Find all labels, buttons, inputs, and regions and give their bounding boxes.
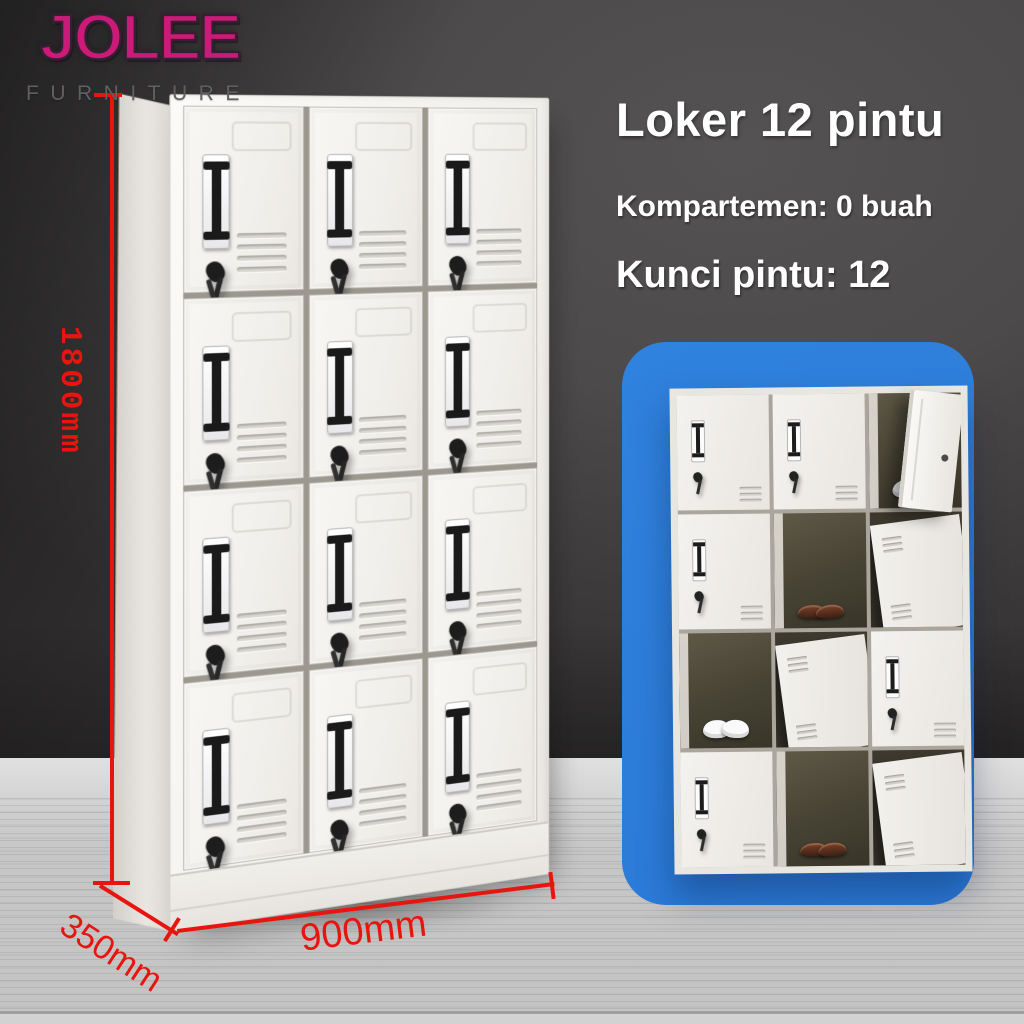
locker-door bbox=[428, 467, 537, 653]
inset-door-closed bbox=[677, 395, 770, 511]
vent-icon bbox=[934, 720, 956, 738]
dimension-height-line bbox=[110, 95, 114, 884]
inset-door-ajar bbox=[872, 750, 965, 866]
dimension-height-label: 1800mm bbox=[52, 326, 87, 456]
vent-icon bbox=[476, 762, 521, 811]
vent-icon bbox=[741, 603, 763, 621]
inset-compartment-open bbox=[774, 513, 867, 629]
emboss-stamp bbox=[355, 122, 412, 151]
product-title: Loker 12 pintu bbox=[616, 92, 1020, 147]
inset-door-ajar bbox=[775, 632, 868, 748]
inset-door-ajar bbox=[870, 512, 963, 628]
cabinet-side-panel bbox=[113, 94, 172, 941]
vent-icon bbox=[237, 415, 287, 463]
door-handle-icon bbox=[691, 421, 705, 463]
handle-grip bbox=[211, 170, 220, 232]
inset-door-closed bbox=[680, 752, 773, 868]
emboss-stamp bbox=[232, 687, 292, 723]
vent-icon bbox=[882, 536, 902, 542]
vent-icon bbox=[739, 484, 761, 502]
vent-icon bbox=[359, 224, 406, 269]
vent-icon bbox=[237, 604, 287, 654]
locker-door bbox=[428, 107, 537, 286]
door-handle-icon bbox=[885, 656, 899, 698]
door-handle-icon bbox=[202, 536, 229, 633]
vent-icon bbox=[359, 593, 406, 641]
emboss-stamp bbox=[472, 662, 526, 696]
locker-door bbox=[183, 106, 303, 293]
vent-icon bbox=[359, 408, 406, 455]
vent-icon bbox=[237, 226, 287, 272]
door-handle-icon bbox=[445, 154, 470, 245]
handle-grip bbox=[335, 170, 344, 230]
brand-logo: JOLEE FURNITURE bbox=[40, 0, 240, 74]
vent-icon bbox=[884, 774, 904, 780]
vent-icon bbox=[743, 841, 765, 859]
emboss-stamp bbox=[472, 482, 526, 514]
vent-icon bbox=[359, 777, 406, 827]
white-sneakers bbox=[707, 720, 745, 743]
inset-compartment-open bbox=[679, 633, 772, 749]
handle-grip bbox=[890, 664, 894, 690]
door-handle-icon bbox=[445, 518, 470, 610]
open-door-panel bbox=[870, 514, 963, 628]
locker-door bbox=[309, 658, 424, 853]
main-locker-cabinet bbox=[169, 94, 549, 932]
inset-door-closed bbox=[871, 631, 964, 747]
door-handle-icon bbox=[327, 341, 353, 435]
handle-grip bbox=[697, 547, 701, 573]
handle-grip bbox=[211, 744, 220, 807]
locker-door bbox=[183, 671, 303, 871]
door-handle-icon bbox=[202, 727, 229, 825]
door-handle-icon bbox=[327, 154, 353, 247]
emboss-stamp bbox=[232, 499, 292, 533]
vent-icon bbox=[237, 792, 287, 843]
keys-icon bbox=[695, 591, 709, 617]
emboss-stamp bbox=[355, 674, 412, 709]
cabinet-front-face bbox=[169, 94, 549, 932]
open-door-panel bbox=[775, 634, 868, 748]
emboss-stamp bbox=[472, 302, 526, 332]
inset-compartment-open bbox=[776, 751, 869, 867]
main-locker-grid bbox=[183, 106, 537, 871]
emboss-stamp bbox=[355, 306, 412, 337]
vent-icon bbox=[476, 222, 521, 266]
handle-grip bbox=[453, 716, 462, 776]
door-handle-icon bbox=[202, 346, 229, 442]
door-handle-icon bbox=[692, 539, 706, 581]
door-handle-icon bbox=[202, 155, 229, 250]
brown-loafers bbox=[805, 843, 841, 861]
product-banner: JOLEE FURNITURE Loker 12 pintu Kompartem… bbox=[0, 0, 1024, 1024]
inset-door-closed bbox=[678, 514, 771, 630]
emboss-stamp bbox=[355, 490, 412, 523]
handle-grip bbox=[453, 351, 462, 410]
locker-door bbox=[428, 288, 537, 470]
door-handle-icon bbox=[327, 527, 353, 622]
locker-door bbox=[183, 295, 303, 486]
locker-door bbox=[183, 483, 303, 678]
handle-grip bbox=[453, 533, 462, 593]
spec-compartments: Kompartemen: 0 buah bbox=[616, 190, 1020, 224]
handle-grip bbox=[700, 785, 704, 811]
headline-block: Loker 12 pintu Kompartemen: 0 buah Kunci… bbox=[616, 92, 1020, 297]
locker-door bbox=[309, 107, 424, 290]
door-lock-icon bbox=[941, 454, 949, 462]
emboss-stamp bbox=[232, 121, 292, 151]
spec-locks: Kunci pintu: 12 bbox=[616, 254, 1020, 297]
emboss-stamp bbox=[472, 122, 526, 150]
inset-door-closed bbox=[773, 394, 866, 510]
brand-name: JOLEE bbox=[40, 0, 240, 74]
vent-icon bbox=[835, 483, 857, 501]
inset-blue-panel bbox=[622, 342, 974, 905]
vent-icon bbox=[476, 402, 521, 447]
handle-grip bbox=[335, 356, 344, 417]
brown-loafers bbox=[803, 605, 839, 623]
handle-grip bbox=[335, 729, 344, 790]
locker-door bbox=[428, 646, 537, 836]
dimension-height-tick-bottom bbox=[93, 881, 130, 885]
door-handle-icon bbox=[695, 777, 709, 819]
vent-icon bbox=[787, 656, 807, 662]
keys-icon bbox=[888, 708, 902, 734]
open-door-panel bbox=[872, 752, 965, 866]
keys-icon bbox=[789, 471, 803, 497]
locker-door bbox=[309, 291, 424, 477]
door-handle-icon bbox=[445, 336, 470, 428]
handle-grip bbox=[335, 543, 344, 604]
locker-door bbox=[309, 475, 424, 666]
door-handle-icon bbox=[327, 713, 353, 809]
emboss-stamp bbox=[232, 310, 292, 342]
floor-plank-edge bbox=[0, 1014, 1024, 1024]
handle-grip bbox=[453, 169, 462, 228]
handle-grip bbox=[211, 553, 220, 616]
brand-subtitle: FURNITURE bbox=[26, 82, 251, 106]
handle-grip bbox=[696, 428, 700, 454]
handle-grip bbox=[211, 361, 220, 423]
handle-grip bbox=[792, 427, 796, 453]
keys-icon bbox=[693, 472, 707, 498]
door-handle-icon bbox=[787, 419, 801, 461]
door-edge-line bbox=[911, 399, 924, 501]
vent-icon bbox=[476, 582, 521, 629]
door-handle-icon bbox=[445, 700, 470, 793]
keys-icon bbox=[697, 829, 711, 855]
